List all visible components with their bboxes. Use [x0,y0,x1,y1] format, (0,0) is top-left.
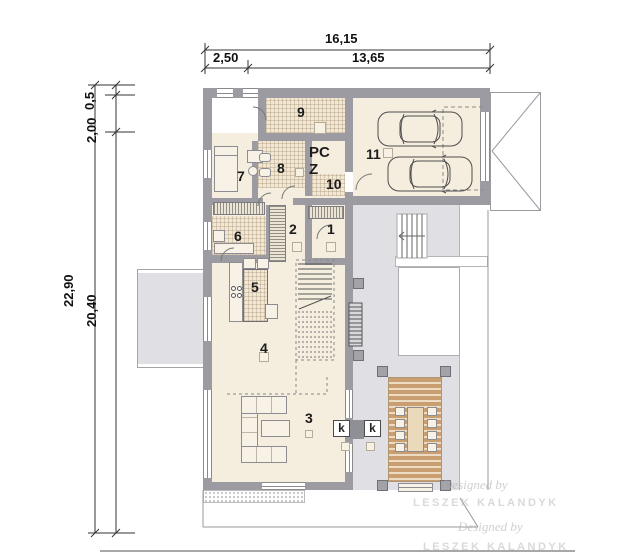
dim-top-right: 13,65 [352,50,385,65]
coffee-table [261,420,290,437]
sofa-arm-bottom [241,446,287,463]
washer [213,230,225,242]
chimney [350,420,364,439]
bidet [259,168,271,177]
marker-square [305,430,313,438]
dim-left-inner: 20,40 [84,294,99,327]
terrace-door-left [203,297,212,341]
room-label-4: 4 [260,340,268,356]
window-right-1 [345,390,353,418]
wardrobe-hatch-left [213,202,265,215]
room-label-3: 3 [305,410,313,426]
canopy-roof-icon [491,93,541,211]
room-label-7: 7 [237,168,245,184]
watermark-name: LESZEK KALANDYK [413,497,559,509]
terrace-landing [395,256,488,267]
terrace-post [353,350,364,361]
dining-chair [427,407,437,416]
entry-porch [212,98,258,133]
room-9-tiled-floor [266,98,345,133]
room-label-z: Z [309,161,318,178]
window-left-1 [203,150,212,178]
marker-square [292,242,302,252]
bath-fixture [295,168,304,177]
cooktop-burner [237,286,242,291]
fridge [265,304,278,319]
wall-garage-right-upper [480,88,490,112]
wall-bottom-left [203,482,262,490]
dining-chair [395,443,405,452]
room-label-11: 11 [366,146,381,162]
watermark-script: Designed by [443,477,508,493]
kitchen-upper-unit-2 [257,258,269,269]
fireplace-box-right: k [364,420,381,437]
deck-post [377,480,388,491]
wall-under-1 [305,258,353,265]
window-left-2 [203,222,212,250]
kitchen-upper-unit-1 [243,258,256,269]
room-label-5: 5 [251,279,259,295]
dining-chair [427,431,437,440]
window-left-living [203,390,212,478]
chair [248,166,258,176]
floor-plan-canvas: k k [0,0,638,556]
left-terrace [137,269,204,368]
room-label-9: 9 [297,104,305,120]
dining-chair [395,407,405,416]
dining-chair [395,419,405,428]
marker-square [383,148,393,158]
cooktop-burner [237,293,242,298]
dining-chair [427,443,437,452]
wall-mid-right [293,198,352,205]
bed [214,146,238,192]
dim-left-upper: 2,00 [84,118,99,143]
wall-bottom-right [305,482,353,490]
marker-square [341,442,350,451]
window-top-2 [243,88,258,98]
kitchen-counter-left [229,262,243,322]
window-top-1 [217,88,233,98]
room-label-2: 2 [289,221,297,237]
dim-top-left: 2,50 [213,50,238,65]
patio [398,267,460,356]
watermark-name: LESZEK KALANDYK [423,541,569,553]
bath6-counter [214,243,254,254]
cooktop-burner [231,293,236,298]
wardrobe-hatch-hall [269,205,286,262]
dining-table [407,407,424,452]
marker-square [314,122,326,134]
garage-house-door [345,172,353,192]
window-bottom [262,482,305,490]
toilet [259,153,271,162]
garage-gate [480,112,490,181]
watermark-script: Designed by [458,519,523,535]
dim-top-total: 16,15 [325,31,358,46]
room-label-pc: PC [309,144,330,161]
dim-left-overall: 22,90 [61,274,76,307]
dining-chair [395,431,405,440]
dim-left-upper-small: 0,5 [82,92,97,110]
deck-post [440,366,451,377]
wall-under-room9 [258,133,345,141]
marker-square [366,442,375,451]
room-label-10: 10 [326,176,342,192]
dining-chair [427,419,437,428]
deck-post [377,366,388,377]
fireplace-label: k [338,421,345,435]
marker-square [326,242,336,252]
cooktop-burner [231,286,236,291]
sofa-arm-top [241,396,287,414]
bench [398,483,433,492]
gravel-strip [203,490,305,503]
wardrobe-hatch-room1 [308,206,344,219]
room-label-8: 8 [277,160,285,176]
fireplace-label: k [369,421,376,435]
room-label-6: 6 [234,228,242,244]
fireplace-box-left: k [333,420,350,437]
terrace-post [353,278,364,289]
room-label-1: 1 [327,221,335,237]
wall-garage-bottom [353,196,490,205]
